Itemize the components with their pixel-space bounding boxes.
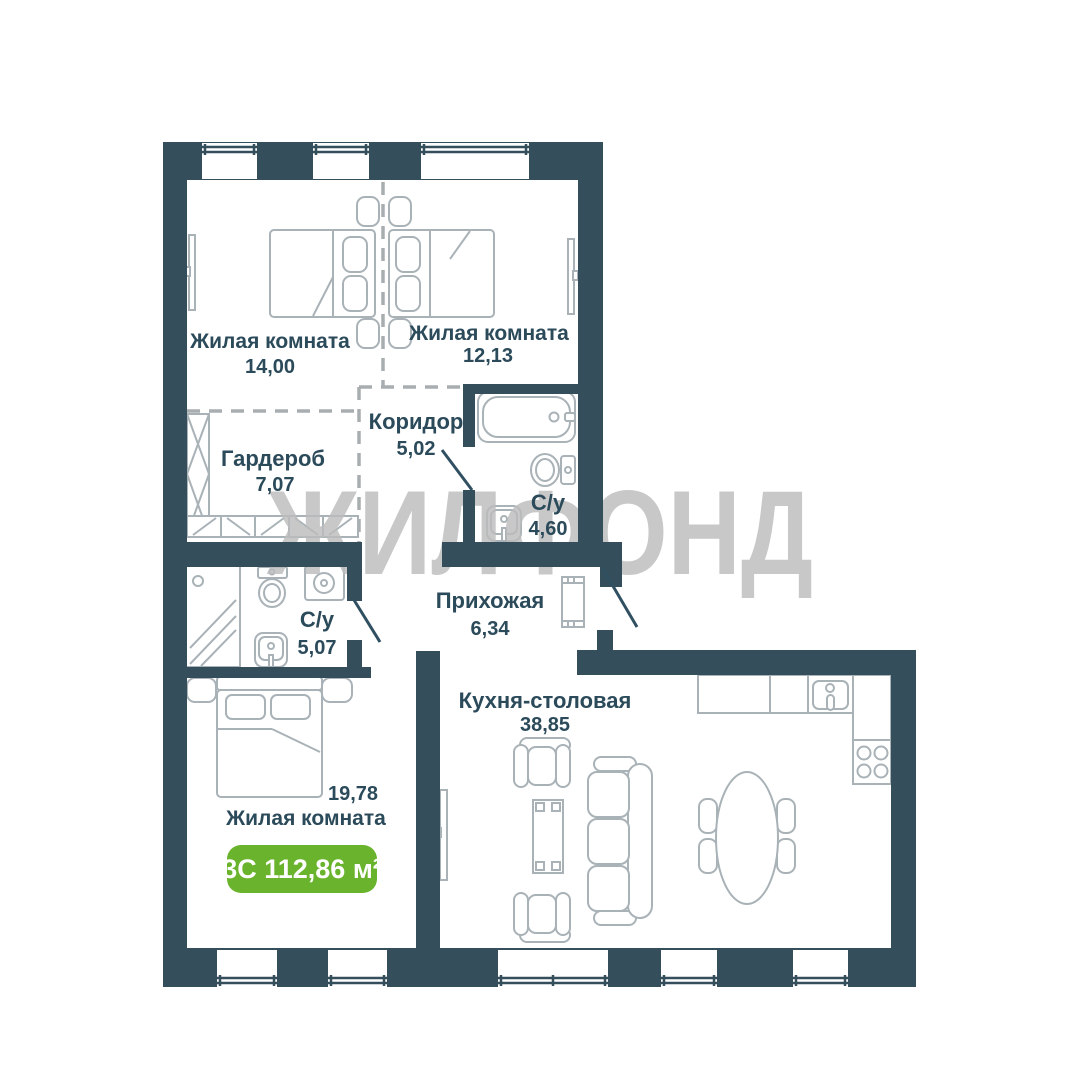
sofa-icon bbox=[588, 757, 652, 925]
wall bbox=[577, 650, 916, 675]
wall bbox=[416, 651, 440, 948]
room-area-corridor: 5,02 bbox=[397, 438, 436, 460]
room-label-living-2: Жилая комната bbox=[408, 322, 569, 345]
window-icon bbox=[328, 950, 387, 987]
room-label-wardrobe: Гардероб bbox=[221, 446, 325, 471]
bed-icon bbox=[389, 230, 494, 317]
room-label-corridor: Коридор bbox=[369, 409, 464, 434]
window-icon bbox=[498, 950, 608, 987]
coffee-table-icon bbox=[533, 800, 563, 873]
armchair-icon bbox=[514, 893, 570, 942]
area-badge: 3С 112,86 м² bbox=[222, 845, 382, 893]
wall-entrance-stub bbox=[597, 630, 613, 652]
bed-icon bbox=[270, 230, 375, 317]
floor-plan-svg: ЖИЛФОНД bbox=[0, 0, 1080, 1080]
wall bbox=[463, 384, 475, 447]
room-area-bathroom-2: 5,07 bbox=[298, 637, 337, 659]
wall bbox=[578, 142, 603, 567]
shower-icon bbox=[186, 564, 240, 667]
dining-table-icon bbox=[699, 772, 795, 904]
room-label-bathroom-2: С/у bbox=[300, 607, 335, 632]
area-badge-label: 3С 112,86 м² bbox=[222, 854, 382, 884]
nightstand-icon bbox=[187, 678, 216, 702]
nightstand-icon bbox=[357, 197, 379, 226]
nightstand-icon bbox=[389, 197, 411, 226]
room-label-living-3: Жилая комната bbox=[225, 807, 386, 830]
window-icon bbox=[313, 143, 369, 179]
room-area-wardrobe: 7,07 bbox=[256, 474, 295, 496]
kitchen-counter-icon bbox=[698, 675, 891, 740]
room-label-living-1: Жилая комната bbox=[189, 330, 350, 353]
wall bbox=[442, 542, 622, 567]
nightstand-icon bbox=[322, 678, 352, 702]
room-area-hallway: 6,34 bbox=[471, 618, 511, 640]
room-area-living-2: 12,13 bbox=[463, 345, 513, 367]
wall bbox=[163, 667, 371, 678]
armchair-icon bbox=[514, 738, 570, 787]
window-icon bbox=[661, 950, 717, 987]
wall bbox=[463, 384, 578, 394]
bed-icon bbox=[217, 677, 322, 797]
window-icon bbox=[202, 143, 257, 179]
wall bbox=[347, 640, 362, 667]
room-area-living-1: 14,00 bbox=[245, 356, 295, 378]
nightstand-icon bbox=[389, 319, 411, 348]
radiator-icon bbox=[568, 239, 578, 314]
wall bbox=[463, 490, 475, 542]
sink-icon bbox=[255, 633, 287, 667]
nightstand-icon bbox=[357, 319, 379, 348]
window-icon bbox=[217, 950, 277, 987]
floor-plan-page: ЖИЛФОНД bbox=[0, 0, 1080, 1080]
window-icon bbox=[421, 143, 529, 179]
room-label-kitchen: Кухня-столовая bbox=[459, 688, 632, 713]
window-icon bbox=[793, 950, 848, 987]
stove-icon bbox=[853, 740, 891, 784]
wall bbox=[163, 542, 362, 567]
door-swing-icon bbox=[354, 600, 380, 642]
room-area-bathroom-1: 4,60 bbox=[529, 518, 568, 540]
room-area-living-3: 19,78 bbox=[328, 783, 378, 805]
room-area-kitchen: 38,85 bbox=[520, 714, 570, 736]
bathtub-icon bbox=[478, 392, 575, 442]
wall bbox=[891, 650, 916, 987]
wall bbox=[347, 563, 362, 601]
room-label-bathroom-1: С/у bbox=[531, 490, 566, 515]
room-label-hallway: Прихожая bbox=[436, 588, 545, 613]
